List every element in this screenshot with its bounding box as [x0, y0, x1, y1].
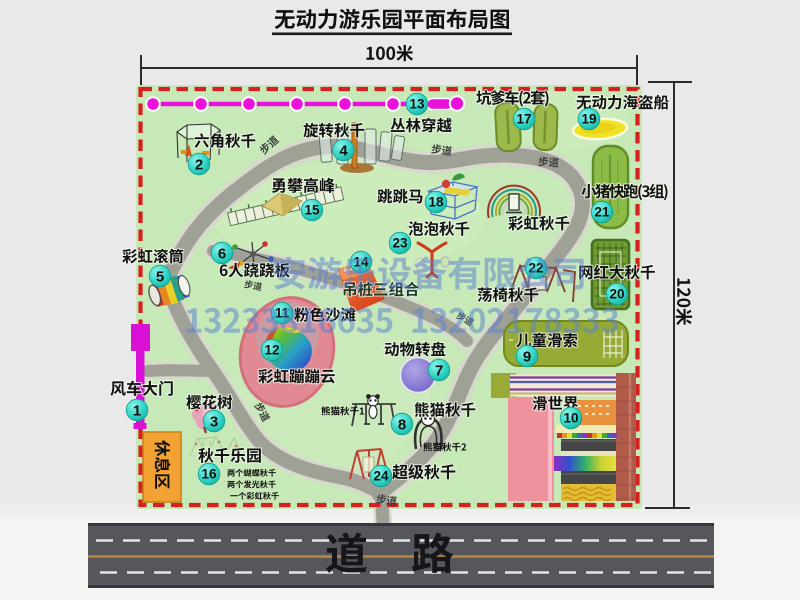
svg-text:17: 17: [516, 112, 531, 127]
svg-text:23: 23: [392, 236, 408, 251]
svg-text:10: 10: [563, 411, 578, 426]
svg-text:8: 8: [398, 416, 406, 433]
svg-text:1: 1: [133, 402, 141, 419]
svg-text:5: 5: [156, 268, 164, 285]
svg-text:15: 15: [304, 203, 320, 218]
svg-text:13: 13: [409, 97, 425, 112]
svg-text:19: 19: [581, 112, 596, 127]
svg-text:20: 20: [609, 287, 624, 302]
svg-text:7: 7: [435, 362, 443, 379]
svg-text:3: 3: [210, 413, 218, 430]
svg-text:24: 24: [373, 469, 389, 484]
svg-text:12: 12: [264, 343, 279, 358]
svg-text:4: 4: [339, 142, 348, 159]
svg-text:21: 21: [594, 205, 610, 220]
svg-text:18: 18: [428, 195, 444, 210]
svg-text:16: 16: [201, 467, 217, 482]
svg-text:2: 2: [195, 156, 203, 173]
svg-text:6: 6: [218, 245, 226, 262]
svg-text:9: 9: [523, 348, 531, 365]
